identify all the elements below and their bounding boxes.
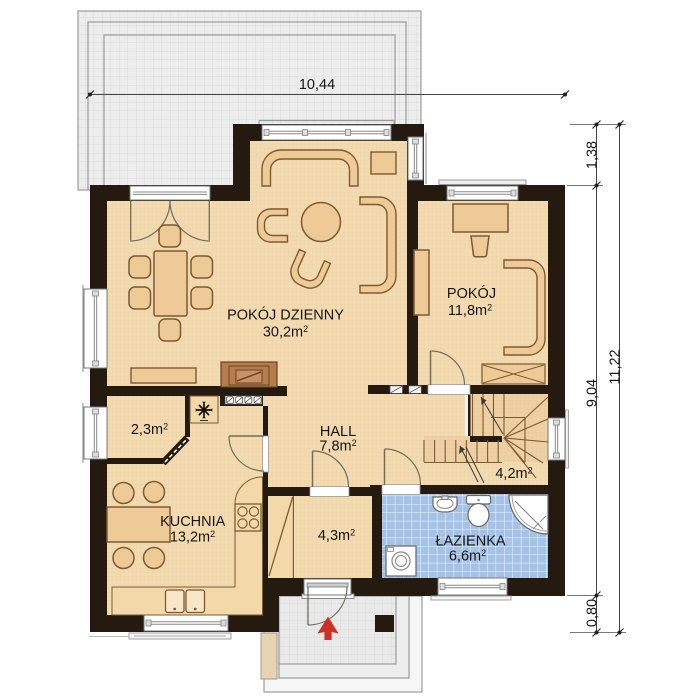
svg-text:0,80: 0,80 (585, 599, 601, 627)
svg-text:4,2m2: 4,2m2 (495, 466, 532, 483)
svg-text:13,2m2: 13,2m2 (170, 529, 215, 546)
svg-text:POKÓJ: POKÓJ (447, 285, 496, 302)
svg-text:11,22: 11,22 (608, 349, 624, 384)
svg-text:1,38: 1,38 (585, 141, 601, 169)
svg-text:KUCHNIA: KUCHNIA (160, 514, 226, 530)
svg-text:7,8m2: 7,8m2 (319, 438, 356, 455)
svg-text:ŁAZIENKA: ŁAZIENKA (435, 534, 505, 550)
svg-text:4,3m2: 4,3m2 (318, 528, 355, 545)
svg-text:9,04: 9,04 (585, 379, 601, 407)
svg-text:11,8m2: 11,8m2 (448, 303, 492, 320)
svg-text:6,6m2: 6,6m2 (449, 548, 486, 565)
svg-text:POKÓJ DZIENNY: POKÓJ DZIENNY (227, 307, 344, 324)
svg-text:2,3m2: 2,3m2 (131, 422, 168, 439)
svg-text:30,2m2: 30,2m2 (263, 324, 308, 341)
svg-text:10,44: 10,44 (299, 77, 335, 93)
